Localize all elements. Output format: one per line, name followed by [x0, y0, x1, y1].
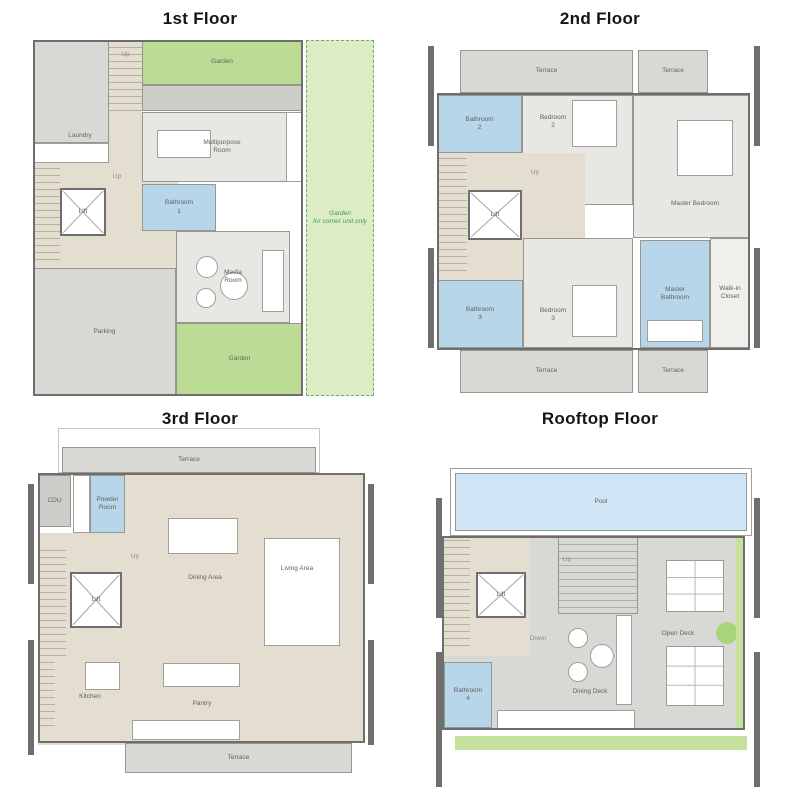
floor-3-living-area-label-label: Living Area	[281, 565, 313, 573]
floor-2-lift: Lift	[468, 190, 522, 240]
rooftop-daybed-table-2	[666, 646, 724, 706]
rooftop-green-strip-right	[736, 536, 745, 730]
floor-plan-1st: 1st Floor GardenUpLaundryLiftUpMultipurp…	[0, 0, 400, 400]
floor-1-closet	[286, 112, 302, 182]
floor-2-terrace-top-right-label: Terrace	[662, 67, 684, 75]
floor-3-bottom-counter	[132, 720, 240, 740]
floor-3-powder-lobby	[73, 475, 90, 533]
rooftop-up-label-label: Up	[563, 556, 571, 564]
floor-2-terrace-bottom-right: Terrace	[638, 350, 708, 393]
floor-plan-3rd: 3rd Floor TerraceCDUPowder RoomLiftUpDin…	[0, 400, 400, 800]
floor-3-pantry-label-label: Pantry	[193, 700, 212, 708]
floor-3-wall-fin-left-bottom	[28, 640, 34, 755]
floor-3-lift-label: Lift	[92, 596, 101, 604]
floor-3-living-area-label: Living Area	[252, 563, 342, 575]
floor-2-walk-in-closet: Walk-in Closet	[710, 238, 750, 348]
floor-title-3rd: 3rd Floor	[0, 409, 400, 429]
floor-2-up-label: Up	[518, 168, 552, 178]
floor-1-lift: Lift	[60, 188, 106, 236]
floor-2-bathroom-2: Bathroom 2	[437, 95, 522, 153]
floor-2-terrace-top-right: Terrace	[638, 50, 708, 93]
floor-2-wall-fin-right-bottom	[754, 248, 760, 348]
rooftop-wall-fin-right-bottom	[754, 652, 760, 787]
floor-3-powder-room-label: Powder Room	[96, 496, 118, 513]
floor-3-wall-fin-right-top	[368, 484, 374, 584]
floor-plan-2nd: 2nd Floor TerraceTerraceBathroom 2Bedroo…	[400, 0, 800, 400]
floor-2-master-bed	[677, 120, 733, 176]
floor-3-terrace-top-label: Terrace	[178, 456, 200, 464]
floor-1-up-label-hall-label: Up	[113, 173, 121, 181]
rooftop-deck-chair-3	[568, 662, 588, 682]
floor-2-terrace-top-left-label: Terrace	[536, 67, 558, 75]
table-grid-icon	[667, 647, 723, 705]
floor-2-wall-fin-right-top	[754, 46, 760, 146]
floor-2-bedroom-2-label: Bedroom 2	[518, 112, 588, 132]
rooftop-pool-label: Pool	[594, 498, 607, 506]
floor-1-up-label-hall: Up	[100, 172, 134, 182]
rooftop-dining-deck-label-label: Dining Deck	[572, 688, 607, 696]
floor-2-up-label-label: Up	[531, 169, 539, 177]
floor-2-hall-stairs	[437, 158, 467, 274]
floor-1-laundry-label-label: Laundry	[68, 132, 92, 140]
rooftop-deck-chair-2	[590, 644, 614, 668]
floor-2-bedroom-3-label-label: Bedroom 3	[540, 307, 566, 324]
floor-1-media-chair-1	[196, 256, 218, 278]
floor-1-garden-ledge	[142, 85, 302, 111]
floor-3-lift: Lift	[70, 572, 122, 628]
floor-1-garden-top-label: Garden	[211, 58, 233, 66]
floor-3-pantry-label: Pantry	[172, 698, 232, 710]
floor-1-parking-label: Parking	[93, 328, 115, 336]
floor-1-up-label-entry-label: Up	[121, 51, 129, 59]
floor-3-cdu-label: CDU	[47, 497, 61, 505]
floor-plan-sheet: 1st Floor GardenUpLaundryLiftUpMultipurp…	[0, 0, 800, 800]
rooftop-lift: Lift	[476, 572, 526, 618]
floor-1-corner-garden-label: Garden for corner unit only	[313, 210, 367, 227]
floor-2-bathroom-3: Bathroom 3	[437, 280, 523, 348]
floor-2-bathroom-2-label: Bathroom 2	[465, 116, 493, 133]
floor-3-terrace-top: Terrace	[62, 447, 316, 473]
floor-2-bathroom-3-label: Bathroom 3	[466, 306, 494, 323]
floor-3-dining-table	[168, 518, 238, 554]
rooftop-kitchen-counter	[497, 710, 635, 730]
floor-3-cdu: CDU	[38, 475, 71, 527]
floor-1-laundry-room	[33, 143, 109, 163]
floor-3-pantry-island	[163, 663, 240, 687]
floor-1-media-chair-2	[196, 288, 216, 308]
rooftop-open-deck-label-label: Open Deck	[662, 630, 695, 638]
floor-3-powder-room: Powder Room	[90, 475, 125, 533]
floor-3-terrace-bottom-label: Terrace	[228, 754, 250, 762]
floor-1-laundry-label: Laundry	[50, 131, 110, 141]
floor-2-terrace-bottom-left: Terrace	[460, 350, 633, 393]
floor-2-terrace-top-left: Terrace	[460, 50, 633, 93]
rooftop-bathroom-4-label: Bathroom 4	[454, 687, 482, 704]
rooftop-deck-chair-1	[568, 628, 588, 648]
floor-1-media-room-label: Media Room	[224, 269, 242, 286]
rooftop-lift-label: Lift	[497, 591, 506, 599]
rooftop-hall-stairs	[442, 540, 470, 652]
floor-2-wall-fin-left-top	[428, 46, 434, 146]
floor-title-2nd: 2nd Floor	[400, 9, 800, 29]
floor-1-hall-stairs	[33, 168, 60, 261]
floor-3-terrace-bottom: Terrace	[125, 743, 352, 773]
floor-2-master-bedroom-label: Master Bedroom	[650, 198, 740, 210]
floor-2-bathtub	[647, 320, 703, 342]
floor-1-corridor	[109, 112, 142, 168]
floor-1-up-label-entry: Up	[109, 50, 142, 60]
rooftop-center-stairs	[558, 536, 638, 614]
floor-3-wall-fin-left-top	[28, 484, 34, 584]
floor-plan-rooftop: Rooftop Floor PoolLiftUpDownBathroom 4Di…	[400, 400, 800, 800]
floor-2-walk-in-closet-label: Walk-in Closet	[719, 285, 740, 302]
rooftop-wall-fin-right-top	[754, 498, 760, 618]
rooftop-down-label: Down	[518, 634, 558, 644]
rooftop-dining-deck-label: Dining Deck	[548, 686, 632, 698]
floor-3-kitchen-label: Kitchen	[79, 693, 101, 701]
floor-1-lift-label: Lift	[79, 208, 88, 216]
rooftop-daybed-table-1	[666, 560, 724, 612]
floor-1-corner-garden: Garden for corner unit only	[306, 40, 374, 396]
floor-3-wall-fin-right-bottom	[368, 640, 374, 745]
rooftop-bathroom-4: Bathroom 4	[444, 662, 492, 728]
floor-3-up-label: Up	[118, 552, 152, 562]
floor-2-master-bathroom-label: Master Bathroom	[661, 286, 689, 303]
floor-3-dining-area-label-label: Dining Area	[188, 574, 222, 582]
floor-3-dining-area-label: Dining Area	[160, 572, 250, 584]
floor-1-multipurpose-room-label: Multipurpose Room	[203, 139, 240, 156]
floor-2-bedroom-3-label: Bedroom 3	[518, 305, 588, 325]
rooftop-planter-circle	[716, 622, 738, 644]
floor-title-rooftop: Rooftop Floor	[400, 409, 800, 429]
rooftop-open-deck-label: Open Deck	[642, 628, 714, 640]
floor-2-bedroom-2-label-label: Bedroom 2	[540, 114, 566, 131]
floor-1-garden-bottom: Garden	[176, 323, 303, 396]
rooftop-down-label-label: Down	[530, 635, 547, 643]
floor-1-bathroom-1: Bathroom 1	[142, 184, 216, 231]
floor-2-lift-label: Lift	[491, 211, 500, 219]
floor-3-living-rug	[264, 538, 340, 646]
rooftop-up-label: Up	[550, 555, 584, 565]
floor-1-garden-top: Garden	[142, 40, 302, 85]
floor-1-bathroom-1-label: Bathroom 1	[165, 199, 193, 216]
floor-2-terrace-bottom-left-label: Terrace	[536, 367, 558, 375]
rooftop-pool: Pool	[455, 473, 747, 531]
floor-2-master-bedroom-label-label: Master Bedroom	[671, 200, 719, 208]
floor-1-driveway-area	[33, 40, 109, 143]
floor-3-kitchen-counter	[85, 662, 120, 690]
table-grid-icon	[667, 561, 723, 611]
floor-2-wall-fin-left-bottom	[428, 248, 434, 348]
floor-3-up-label-label: Up	[131, 553, 139, 561]
floor-1-parking: Parking	[33, 268, 176, 396]
floor-2-terrace-bottom-right-label: Terrace	[662, 367, 684, 375]
rooftop-green-strip-bottom	[455, 736, 747, 750]
floor-1-media-sofa	[262, 250, 284, 312]
floor-1-garden-bottom-label: Garden	[229, 355, 251, 363]
floor-title-1st: 1st Floor	[0, 9, 400, 29]
